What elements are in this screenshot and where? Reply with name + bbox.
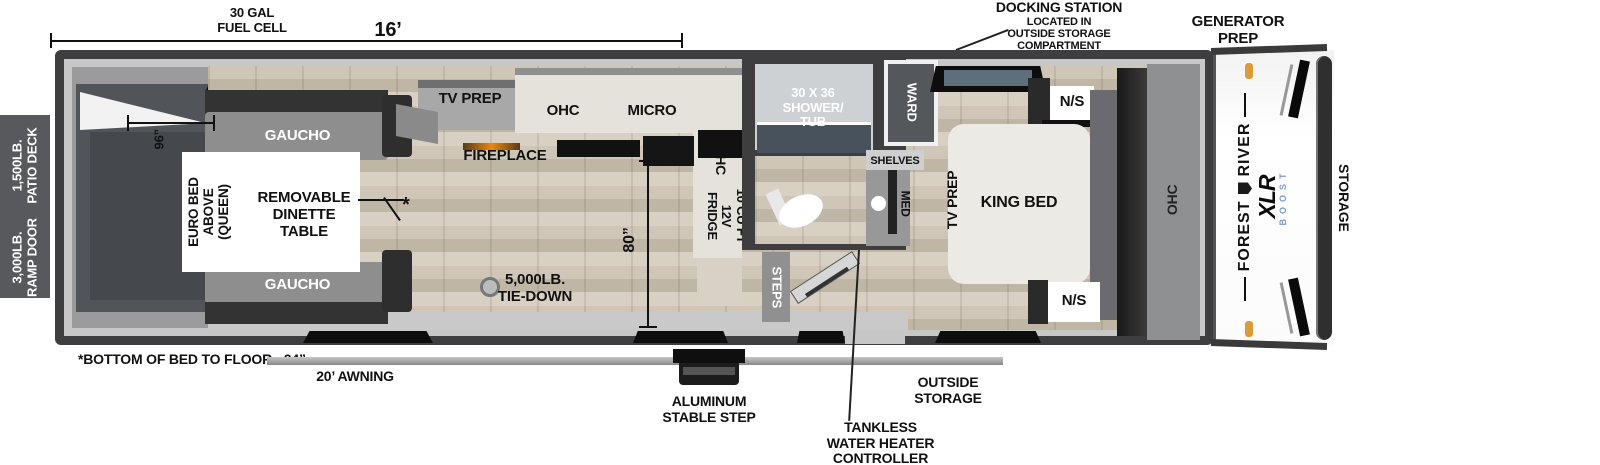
brand-logo: FOREST RIVER XLR BOOST — [1225, 97, 1299, 297]
laurel-line-left-icon — [1244, 277, 1246, 301]
tankless-water-heater-label: TANKLESS WATER HEATER CONTROLLER — [808, 420, 953, 465]
dimension-96in-tick-right — [213, 115, 215, 131]
nightstand-top-cabinet — [1028, 78, 1050, 124]
clearance-marker-bottom — [1244, 320, 1254, 338]
tv-prep-label: TV PREP — [425, 91, 515, 108]
kitchen-counter-edge — [515, 68, 742, 75]
gaucho-bottom-label: GAUCHO — [245, 277, 350, 294]
exterior-step-tread — [683, 367, 735, 375]
dimension-96in-line — [127, 122, 215, 124]
tv-prep-bedroom-label: TV PREP — [945, 160, 961, 240]
awning-label: 20’ AWNING — [295, 369, 415, 385]
dimension-96in-label: 96” — [153, 119, 168, 159]
outside-storage-label: OUTSIDE STORAGE — [898, 375, 998, 406]
bottom-window-entry — [797, 331, 845, 343]
ohc-bedroom-label: OHC — [1165, 177, 1181, 223]
asterisk-mark: * — [402, 194, 410, 216]
fireplace-label: FIREPLACE — [450, 148, 560, 165]
ramp-door-label: 3,000LB. RAMP DOOR — [10, 203, 39, 313]
stable-step-label: ALUMINUM STABLE STEP — [648, 394, 770, 425]
removable-dinette-label: REMOVABLE DINETTE TABLE — [250, 190, 358, 240]
asterisk-leader-line — [358, 199, 404, 201]
gaucho-bottom-arm — [382, 250, 412, 312]
bottom-window-bedroom — [935, 331, 1041, 343]
nightstand-bottom-label: N/S — [1048, 293, 1100, 310]
tie-down-label: 5,000LB. TIE-DOWN — [485, 272, 585, 306]
dimension-16ft-line — [50, 40, 683, 42]
gaucho-bottom-back — [205, 302, 388, 324]
ohc-side-label: OHC — [712, 137, 728, 183]
laurel-line-right-icon — [1244, 93, 1246, 117]
xlr-wordmark: XLR — [1256, 176, 1279, 219]
fuel-cell-label: 30 GAL FUEL CELL — [192, 6, 312, 35]
front-cap-nose-rim — [1316, 56, 1332, 340]
med-cabinet — [888, 170, 897, 234]
dimension-80in-tick-bottom — [639, 326, 657, 328]
nightstand-bottom-cabinet — [1028, 280, 1048, 324]
gaucho-top-label: GAUCHO — [245, 128, 350, 145]
steps-label: STEPS — [769, 257, 784, 317]
bath-sink — [869, 194, 888, 213]
forest-river-wordmark: FOREST RIVER — [1236, 93, 1254, 302]
bedroom-skylight — [944, 70, 1032, 86]
euro-bed-label: EURO BED ABOVE (QUEEN) — [186, 157, 238, 267]
bottom-window-garage — [303, 331, 433, 343]
king-bed-label: KING BED — [949, 194, 1089, 212]
dimension-16ft-tick-right — [681, 33, 683, 48]
exterior-step-top — [673, 349, 745, 363]
forest-river-crest-icon — [1238, 183, 1252, 195]
generator-prep-label: GENERATOR PREP — [1188, 14, 1288, 48]
kitchen-counter — [515, 68, 693, 133]
micro-label: MICRO — [617, 103, 687, 120]
ohc-kitchen-label: OHC — [533, 103, 593, 120]
dimension-80in-tick-top — [639, 160, 657, 162]
boost-wordmark: BOOST — [1279, 169, 1288, 226]
storage-label: STORAGE — [1335, 153, 1351, 243]
tv-prep-wall-edge — [418, 80, 518, 88]
dimension-96in-tick-left — [127, 115, 129, 131]
shelves-label: SHELVES — [866, 155, 924, 167]
bottom-window-kitchen — [633, 331, 728, 343]
fridge-label: 10 CU FT 12V FRIDGE — [696, 184, 748, 248]
kitchen-lower-cabinet — [697, 258, 742, 306]
ward-label: WARD — [904, 67, 919, 137]
dimension-80in-label: 80” — [621, 218, 639, 262]
awning-bar — [267, 357, 1003, 365]
clearance-marker-top — [1244, 62, 1254, 80]
bedroom-wardrobe-strip — [1117, 68, 1147, 336]
nightstand-top-label: N/S — [1050, 94, 1094, 111]
cooktop — [557, 140, 640, 157]
dimension-16ft-tick-left — [50, 33, 52, 48]
dimension-16ft-label: 16’ — [358, 19, 418, 41]
dimension-80in-line — [647, 160, 649, 328]
gaucho-top-back — [205, 90, 388, 114]
shower-tub-label: 30 X 36 SHOWER/ TUB — [762, 86, 864, 130]
floorplan-diagram: 30 GAL FUEL CELL 16’ DOCKING STATION LOC… — [0, 0, 1600, 465]
docking-station-label: DOCKING STATION LOCATED IN OUTSIDE STORA… — [973, 0, 1145, 53]
med-label: MED — [898, 186, 911, 222]
